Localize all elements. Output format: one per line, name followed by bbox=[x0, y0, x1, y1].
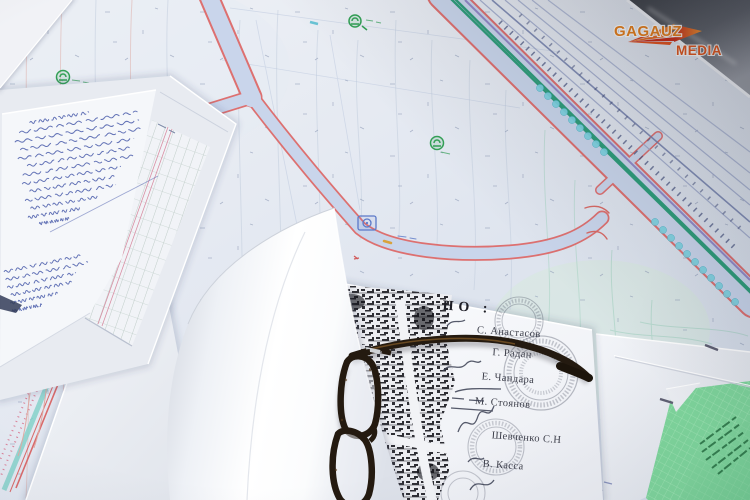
eyeglasses-lens bbox=[333, 431, 372, 500]
stapled-papers bbox=[596, 334, 750, 500]
road-junction bbox=[243, 89, 261, 107]
hinge-cap bbox=[382, 351, 391, 353]
photo-canvas: НО : С. Анастасов Г. Радан Е. Чандара М.… bbox=[0, 0, 750, 500]
desk-photo: НО : С. Анастасов Г. Радан Е. Чандара М.… bbox=[0, 0, 750, 500]
logo-text-gagauz: GAGAUZ bbox=[614, 23, 682, 40]
logo-text-media: MEDIA bbox=[676, 43, 722, 58]
hydrant-square-symbol bbox=[358, 216, 376, 230]
eyeglasses-lens bbox=[341, 356, 378, 436]
